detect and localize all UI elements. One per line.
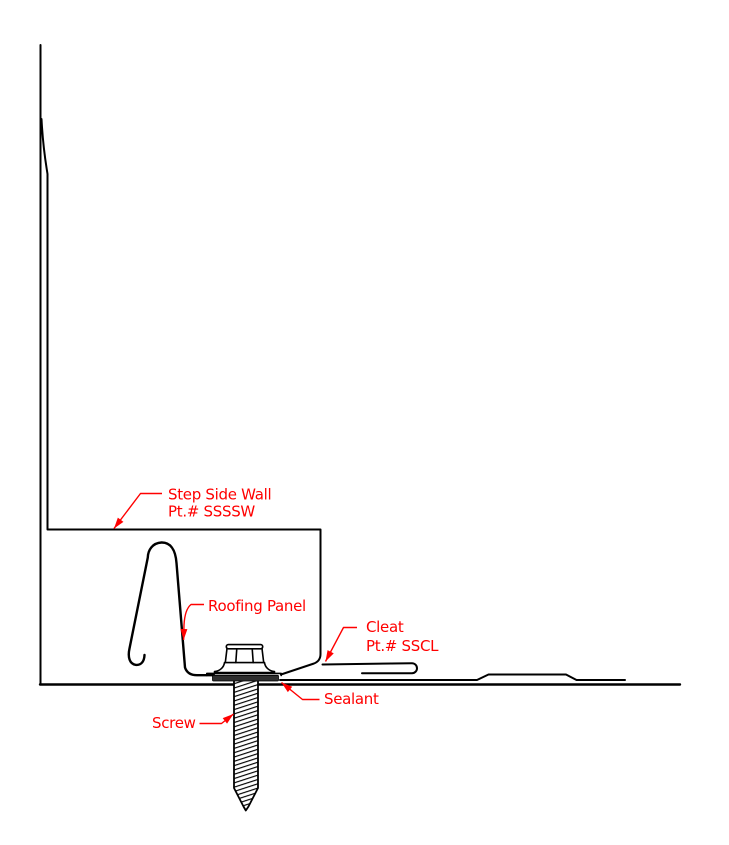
step-side-wall-label-line1: Step Side Wall — [168, 486, 271, 504]
cleat-label-line2: Pt.# SSCL — [366, 637, 439, 655]
step-side-wall-leader — [114, 494, 162, 529]
screw-head-top — [226, 645, 262, 649]
screw-head-flange — [215, 663, 275, 673]
screw-hex-facets — [225, 649, 263, 663]
cleat-leader — [326, 628, 358, 662]
cleat-profile — [323, 663, 418, 673]
drawing-canvas: Step Side Wall Pt.# SSSSW Roofing Panel … — [0, 0, 729, 845]
annotation-sealant: Sealant — [282, 683, 380, 709]
sealant-label: Sealant — [324, 690, 379, 708]
screw-shank-threads — [234, 678, 258, 811]
deck-line-with-rib — [280, 675, 625, 681]
roofing-panel-profile — [129, 542, 214, 675]
screw-label: Screw — [152, 714, 196, 732]
detail-drawing-svg: Step Side Wall Pt.# SSSSW Roofing Panel … — [0, 0, 729, 845]
step-side-wall-label-line2: Pt.# SSSSW — [168, 503, 255, 521]
annotation-screw: Screw — [152, 714, 234, 732]
annotation-cleat: Cleat Pt.# SSCL — [326, 618, 440, 662]
cleat-label-line1: Cleat — [366, 618, 404, 636]
annotation-roofing-panel: Roofing Panel — [184, 597, 306, 640]
roofing-panel-label: Roofing Panel — [208, 597, 306, 615]
step-side-wall-profile — [42, 119, 321, 675]
annotation-step-side-wall: Step Side Wall Pt.# SSSSW — [114, 486, 271, 529]
screw-assembly — [207, 645, 281, 811]
roofing-panel-leader — [184, 605, 204, 641]
sealant-washer-band — [213, 675, 279, 681]
screw-leader — [200, 714, 234, 724]
